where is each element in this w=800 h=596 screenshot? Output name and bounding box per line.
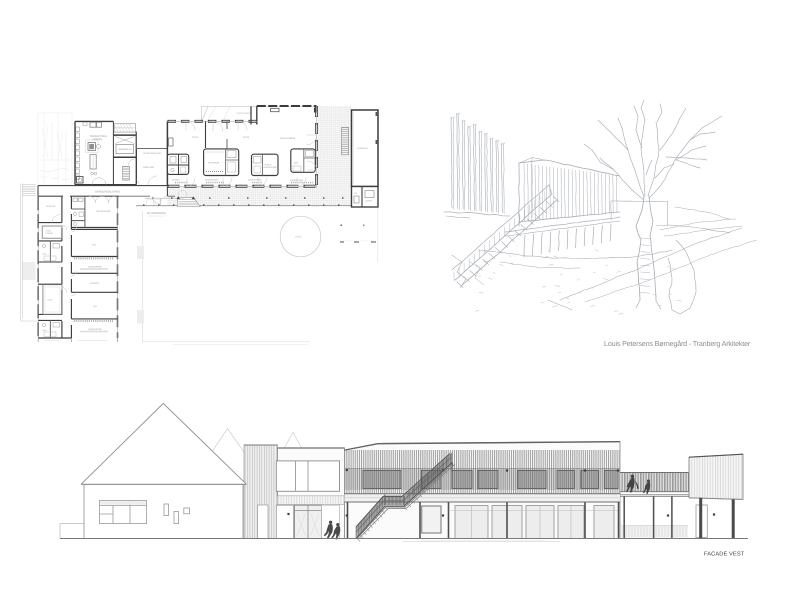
svg-text:SOVERUM: SOVERUM — [208, 162, 219, 165]
svg-text:GRUPPERUM: GRUPPERUM — [96, 210, 110, 213]
svg-text:PRODUKTIONS: PRODUKTIONS — [90, 135, 107, 138]
svg-text:SOVE: SOVE — [47, 299, 53, 302]
svg-text:VOGNE: VOGNE — [172, 179, 180, 182]
svg-text:Louis Petersens Børnegård - Tr: Louis Petersens Børnegård - Tranberg Ark… — [604, 339, 751, 348]
svg-text:GARDEROBE GANG: GARDEROBE GANG — [95, 190, 120, 193]
svg-text:BAD: BAD — [43, 329, 48, 332]
svg-text:GARDEROBE: GARDEROBE — [264, 166, 278, 169]
svg-text:PUSLE: PUSLE — [265, 164, 272, 167]
svg-text:STUE: STUE — [243, 136, 250, 139]
svg-text:GARDEROBE: GARDEROBE — [248, 179, 262, 182]
svg-text:BAD: BAD — [294, 162, 299, 165]
svg-text:SAND: SAND — [295, 236, 302, 239]
svg-text:GARDEROBE: GARDEROBE — [88, 266, 103, 269]
svg-text:HC PARKERING: HC PARKERING — [147, 212, 166, 215]
svg-text:WC: WC — [354, 192, 358, 195]
svg-text:STUE: STUE — [192, 136, 199, 139]
svg-text:BAD: BAD — [43, 253, 48, 256]
svg-text:OVERDÆKKET: OVERDÆKKET — [236, 112, 252, 115]
svg-text:GARDEROBE: GARDEROBE — [205, 179, 219, 182]
svg-text:VINDFANG: VINDFANG — [143, 166, 154, 169]
svg-text:FÆLLESRUM: FÆLLESRUM — [280, 137, 295, 140]
svg-text:VOGNE: VOGNE — [46, 232, 54, 235]
svg-text:KONTOR: KONTOR — [46, 205, 56, 208]
svg-text:HOVEDINDGANG: HOVEDINDGANG — [143, 152, 161, 155]
svg-text:KØKKEN: KØKKEN — [93, 138, 103, 141]
svg-text:GRUPPE: GRUPPE — [90, 282, 100, 285]
svg-text:DEPOT: DEPOT — [366, 200, 374, 203]
svg-text:VAREINDLEV: VAREINDLEV — [118, 148, 132, 151]
svg-text:LIGGEHAL: LIGGEHAL — [357, 147, 369, 150]
svg-text:GARDEROBE: GARDEROBE — [88, 328, 103, 331]
svg-text:FACADE VEST: FACADE VEST — [704, 552, 745, 558]
